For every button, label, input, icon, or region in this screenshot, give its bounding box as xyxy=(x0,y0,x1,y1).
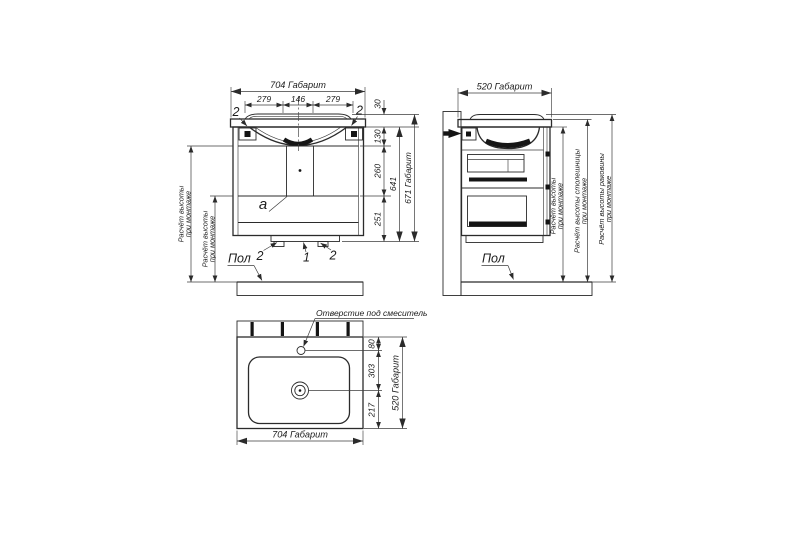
technical-drawing-vanity: 704 Габарит 279 146 279 30 130 26 xyxy=(0,0,800,538)
dim-520-side: 520 Габарит xyxy=(477,82,533,92)
dim-671: 671 Габарит xyxy=(403,152,413,204)
faucet-hole-label: Отверстие под смеситель xyxy=(316,308,427,318)
dim-704-front: 704 Габарит xyxy=(270,80,326,90)
callout-2-foot-left: 2 xyxy=(256,249,264,263)
side-countertop-height-line2: при монтаже xyxy=(580,178,589,224)
callout-2-foot-right: 2 xyxy=(329,249,337,263)
floor-label-front: Пол xyxy=(228,252,251,266)
dim-520-top: 520 Габарит xyxy=(391,355,401,411)
dim-30: 30 xyxy=(373,99,383,109)
dim-217: 217 xyxy=(367,403,377,418)
floor-label-side: Пол xyxy=(482,252,505,266)
detail-a-label: a xyxy=(259,196,267,213)
dim-279-right: 279 xyxy=(325,94,340,104)
dim-146: 146 xyxy=(291,94,305,104)
dim-130: 130 xyxy=(373,129,383,143)
mount-height-2-line2: при монтаже xyxy=(208,216,217,262)
callout-2-top-right: 2 xyxy=(355,104,363,118)
dim-704-top: 704 Габарит xyxy=(272,430,328,440)
drawing-svg: 704 Габарит 279 146 279 30 130 26 xyxy=(0,0,800,538)
dim-303: 303 xyxy=(367,364,377,378)
side-sink-height-line2: при монтаже xyxy=(604,176,613,222)
dim-279-left: 279 xyxy=(256,94,271,104)
page-background xyxy=(0,0,800,538)
mount-height-1-line2: при монтаже xyxy=(184,191,193,237)
side-mount-height-line2: при монтаже xyxy=(556,183,565,229)
dim-260: 260 xyxy=(373,164,383,179)
dim-251: 251 xyxy=(373,212,383,227)
callout-1-plinth: 1 xyxy=(303,251,310,265)
dim-641: 641 xyxy=(388,177,398,191)
dim-80: 80 xyxy=(367,339,377,349)
callout-2-top-left: 2 xyxy=(232,105,240,119)
